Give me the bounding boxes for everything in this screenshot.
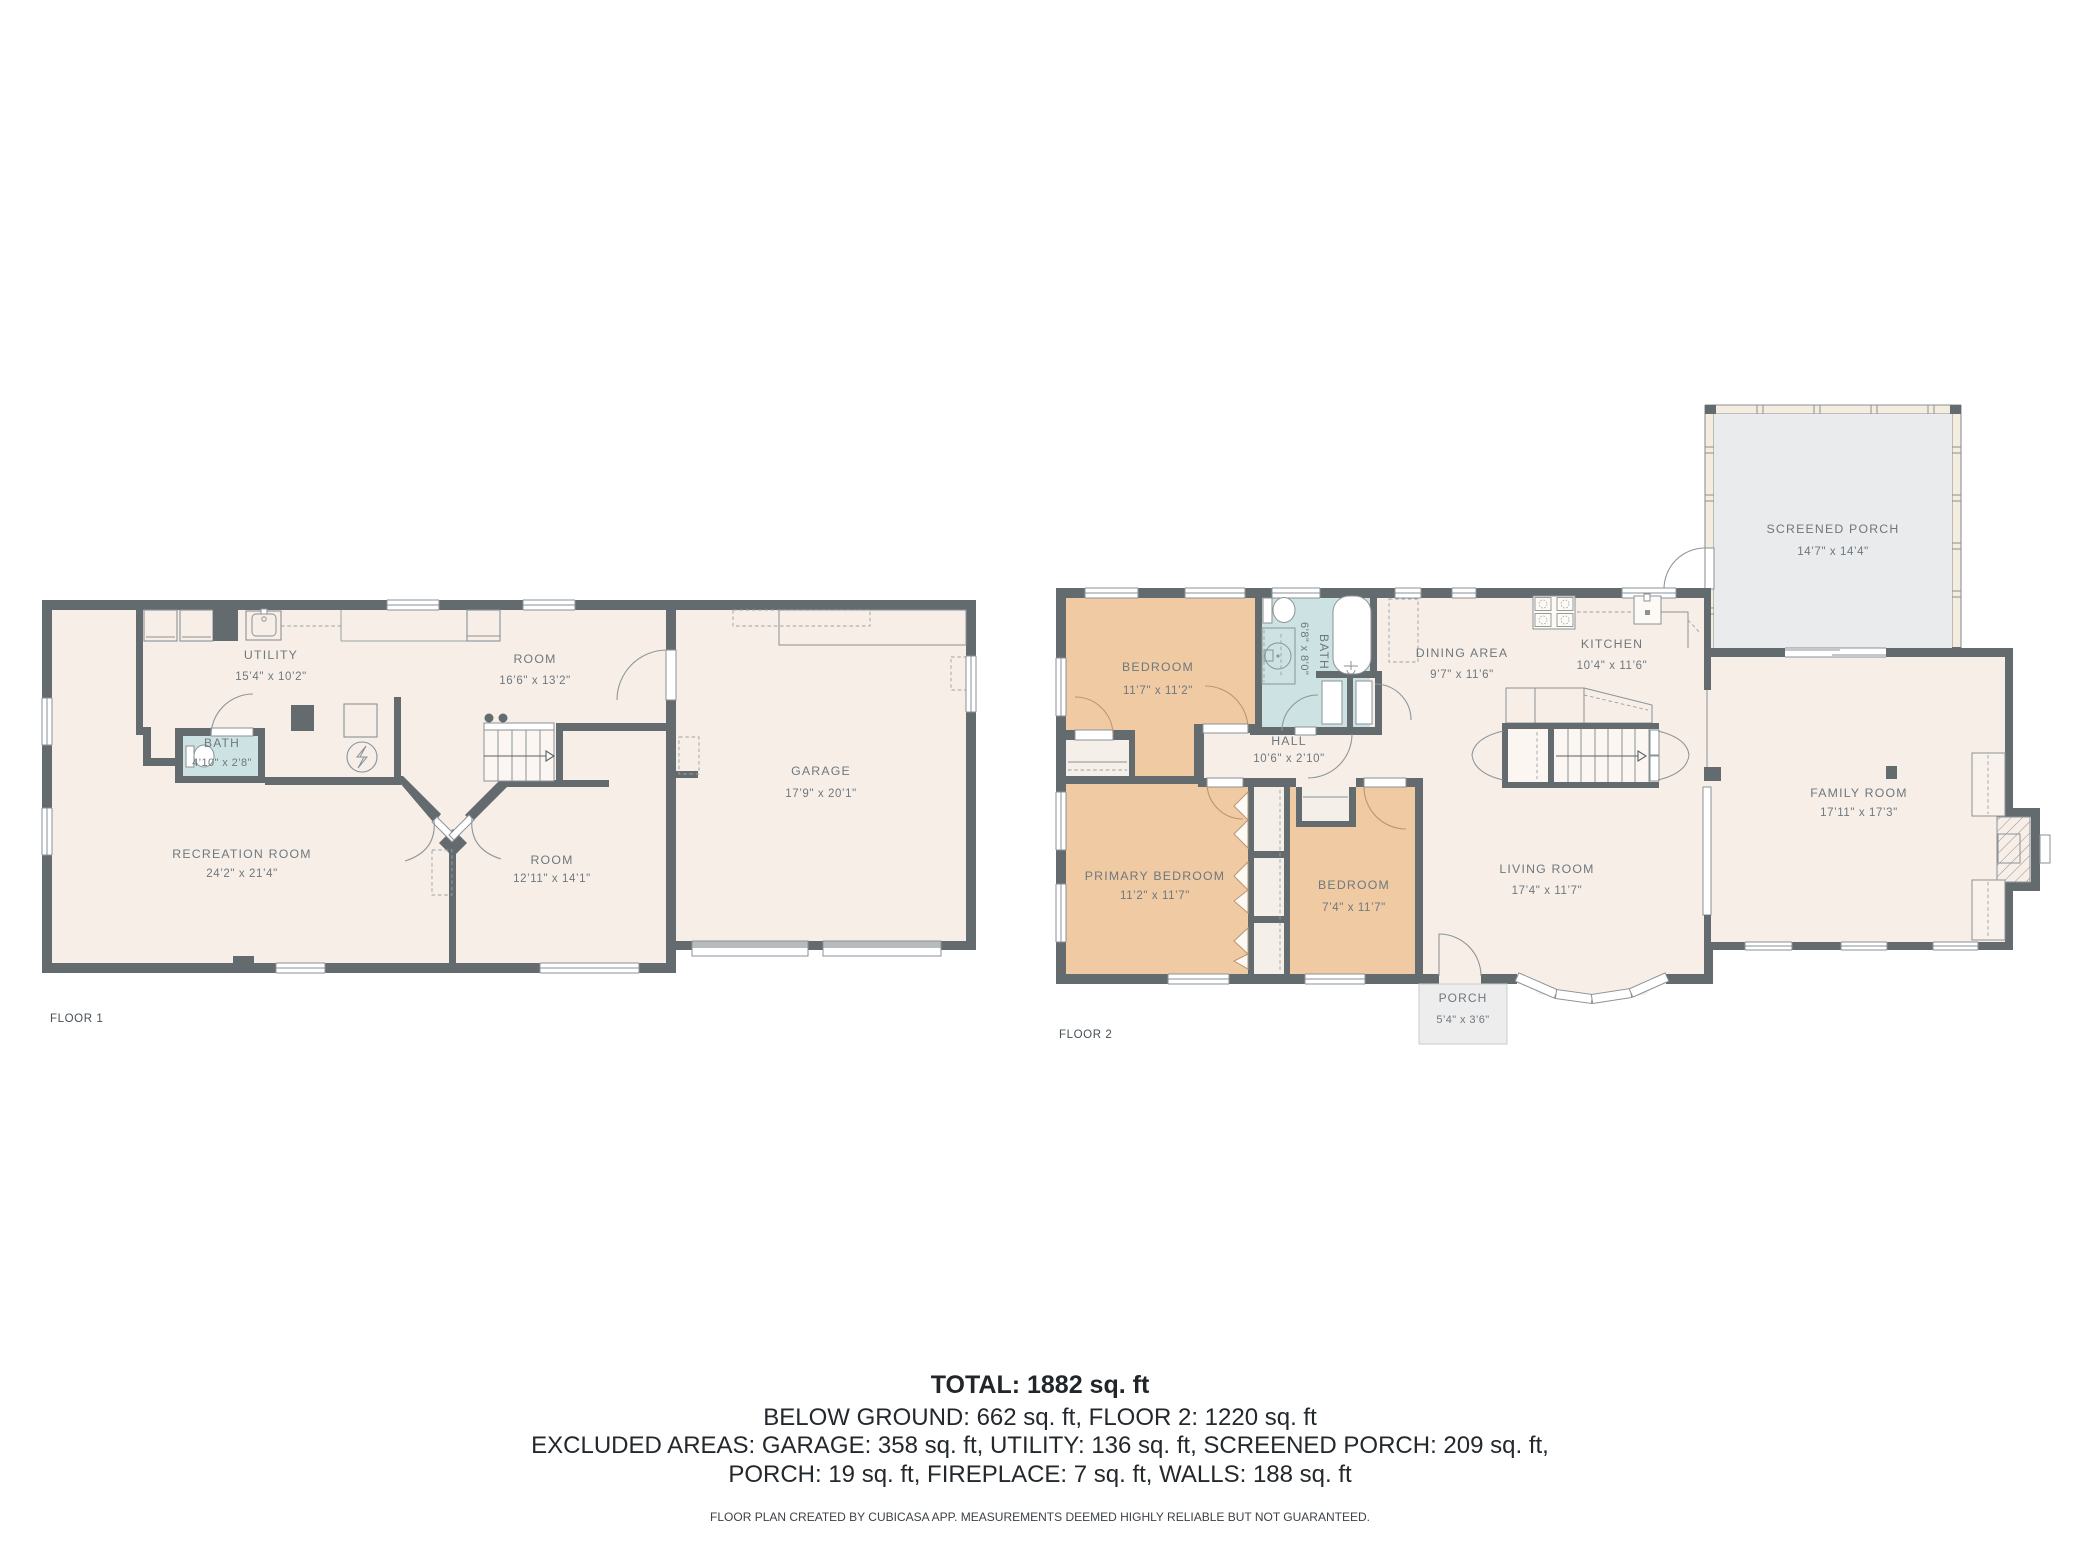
svg-text:17’9" x 20’1": 17’9" x 20’1" [785, 788, 857, 800]
svg-text:ROOM: ROOM [513, 652, 556, 666]
svg-text:17’4" x 11’7": 17’4" x 11’7" [1512, 885, 1583, 897]
svg-text:9’7" x 11’6": 9’7" x 11’6" [1430, 669, 1494, 681]
svg-text:UTILITY: UTILITY [244, 648, 298, 662]
svg-text:RECREATION ROOM: RECREATION ROOM [172, 847, 311, 861]
svg-text:HALL: HALL [1271, 734, 1307, 748]
svg-text:FLOOR 1: FLOOR 1 [50, 1013, 103, 1025]
svg-text:FLOOR 2: FLOOR 2 [1059, 1029, 1112, 1041]
svg-text:BATH: BATH [204, 736, 240, 750]
svg-text:KITCHEN: KITCHEN [1581, 637, 1643, 651]
svg-text:6’8" x 8’0": 6’8" x 8’0" [1298, 622, 1310, 675]
svg-text:11’2" x 11’7": 11’2" x 11’7" [1120, 890, 1190, 902]
svg-text:PORCH: 19 sq. ft, FIREPLACE: 7: PORCH: 19 sq. ft, FIREPLACE: 7 sq. ft, W… [728, 1461, 1352, 1488]
svg-text:4’10" x 2’8": 4’10" x 2’8" [192, 757, 252, 769]
svg-text:10’6" x 2’10": 10’6" x 2’10" [1253, 753, 1325, 765]
svg-text:EXCLUDED AREAS: GARAGE: 358 sq: EXCLUDED AREAS: GARAGE: 358 sq. ft, UTIL… [531, 1432, 1549, 1459]
svg-text:15’4" x 10’2": 15’4" x 10’2" [235, 671, 307, 683]
svg-text:12’11" x 14’1": 12’11" x 14’1" [513, 873, 591, 885]
svg-text:10’4" x 11’6": 10’4" x 11’6" [1577, 660, 1648, 672]
svg-text:ROOM: ROOM [530, 853, 573, 867]
svg-text:17’11" x 17’3": 17’11" x 17’3" [1820, 807, 1898, 819]
svg-text:11’7" x 11’2": 11’7" x 11’2" [1123, 685, 1193, 697]
svg-text:BATH: BATH [1317, 634, 1331, 670]
svg-text:GARAGE: GARAGE [791, 764, 851, 778]
svg-text:5’4" x 3’6": 5’4" x 3’6" [1436, 1014, 1489, 1026]
svg-text:7’4" x 11’7": 7’4" x 11’7" [1322, 902, 1386, 914]
svg-text:BELOW GROUND: 662 sq. ft, FLOO: BELOW GROUND: 662 sq. ft, FLOOR 2: 1220 … [763, 1404, 1317, 1431]
svg-text:TOTAL: 1882 sq. ft: TOTAL: 1882 sq. ft [931, 1371, 1150, 1399]
svg-text:16’6" x 13’2": 16’6" x 13’2" [499, 675, 571, 687]
svg-text:PORCH: PORCH [1439, 991, 1488, 1005]
svg-text:SCREENED PORCH: SCREENED PORCH [1767, 522, 1900, 536]
svg-text:FAMILY ROOM: FAMILY ROOM [1810, 786, 1907, 800]
svg-text:BEDROOM: BEDROOM [1122, 660, 1194, 674]
svg-text:LIVING ROOM: LIVING ROOM [1499, 862, 1594, 876]
svg-text:14’7" x 14’4": 14’7" x 14’4" [1797, 546, 1869, 558]
svg-text:FLOOR PLAN CREATED BY CUBICASA: FLOOR PLAN CREATED BY CUBICASA APP. MEAS… [710, 1510, 1370, 1524]
svg-text:24’2" x 21’4": 24’2" x 21’4" [206, 868, 278, 880]
svg-text:BEDROOM: BEDROOM [1318, 878, 1390, 892]
svg-text:DINING AREA: DINING AREA [1416, 646, 1508, 660]
svg-text:PRIMARY BEDROOM: PRIMARY BEDROOM [1085, 869, 1226, 883]
